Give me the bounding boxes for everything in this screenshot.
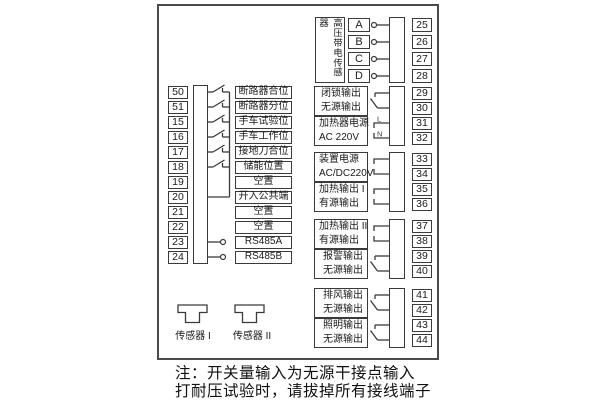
output-group-sublabel: 无源输出 bbox=[323, 303, 363, 317]
hv-sensor-label-box: 高压带电传感器 bbox=[315, 17, 345, 83]
output-group-device-power: 装置电源 AC/DC220V bbox=[314, 152, 368, 182]
output-group-label: 装置电源 bbox=[319, 153, 359, 167]
terminal-label: 空置 bbox=[235, 206, 292, 219]
terminal-label: 开入公共端 bbox=[235, 191, 292, 204]
terminal-number: 18 bbox=[168, 161, 188, 174]
wiring-diagram-page: LN 高压带电传感器 50断路器合位51断路器分位15手车试验位16手车工作位1… bbox=[0, 0, 600, 400]
output-group-heater-power: 加热器电源 AC 220V bbox=[314, 116, 368, 146]
terminal-number: 30 bbox=[412, 102, 432, 115]
output-group-sublabel: 有源输出 bbox=[319, 234, 359, 248]
terminal-number: 22 bbox=[168, 221, 188, 234]
output-group-sublabel: AC 220V bbox=[319, 131, 359, 145]
terminal-number: 29 bbox=[412, 87, 432, 100]
terminal-label: 断路器分位 bbox=[235, 101, 292, 114]
terminal-number: 40 bbox=[412, 265, 432, 278]
output-group-sublabel: 无源输出 bbox=[323, 333, 363, 347]
terminal-number: 28 bbox=[412, 69, 432, 83]
terminal-label: 断路器合位 bbox=[235, 86, 292, 99]
output-group-lighting: 照明输出 无源输出 bbox=[314, 318, 368, 348]
note-line-2: 打耐压试验时，请拔掉所有接线端子 bbox=[175, 379, 431, 400]
output-group-block-lock: 闭锁输出 无源输出 bbox=[314, 86, 368, 116]
input-screw-column bbox=[193, 85, 208, 264]
hv-phase-box: B bbox=[348, 35, 370, 49]
terminal-number: 33 bbox=[412, 153, 432, 166]
sensor-2-label: 传感器 II bbox=[228, 327, 276, 342]
terminal-number: 26 bbox=[412, 35, 432, 49]
terminal-number: 36 bbox=[412, 198, 432, 211]
terminal-number: 15 bbox=[168, 116, 188, 129]
terminal-number: 43 bbox=[412, 319, 432, 332]
output-group-label: 报警输出 bbox=[323, 250, 363, 264]
output-group-heat-2: 加热输出 II 有源输出 bbox=[314, 219, 368, 249]
terminal-label: 空置 bbox=[235, 221, 292, 234]
output-group-label: 加热输出 I bbox=[319, 183, 365, 197]
terminal-number: 35 bbox=[412, 183, 432, 196]
terminal-number: 50 bbox=[168, 86, 188, 99]
terminal-number: 24 bbox=[168, 251, 188, 264]
terminal-label: 接地刀合位 bbox=[235, 146, 292, 159]
terminal-number: 41 bbox=[412, 289, 432, 302]
hv-screw-column bbox=[389, 17, 405, 83]
output-group-sublabel: 无源输出 bbox=[323, 264, 363, 278]
terminal-number: 32 bbox=[412, 132, 432, 145]
terminal-label: RS485A bbox=[235, 236, 292, 249]
terminal-number: 21 bbox=[168, 206, 188, 219]
terminal-label: RS485B bbox=[235, 251, 292, 264]
terminal-number: 23 bbox=[168, 236, 188, 249]
output-group-label: 闭锁输出 bbox=[321, 87, 361, 101]
terminal-number: 51 bbox=[168, 101, 188, 114]
output-group-exhaust: 排风输出 无源输出 bbox=[314, 288, 368, 318]
terminal-number: 17 bbox=[168, 146, 188, 159]
terminal-number: 31 bbox=[412, 117, 432, 130]
hv-phase-box: C bbox=[348, 52, 370, 66]
output-group-sublabel: AC/DC220V bbox=[319, 167, 373, 181]
output-screw-column-3 bbox=[389, 219, 405, 279]
terminal-label: 空置 bbox=[235, 176, 292, 189]
terminal-number: 19 bbox=[168, 176, 188, 189]
output-group-sublabel: 无源输出 bbox=[321, 101, 361, 115]
terminal-number: 42 bbox=[412, 304, 432, 317]
output-screw-column-2 bbox=[389, 152, 405, 212]
output-group-heat-1: 加热输出 I 有源输出 bbox=[314, 182, 368, 212]
output-group-sublabel: 有源输出 bbox=[319, 197, 359, 211]
output-screw-column-4 bbox=[389, 288, 405, 348]
terminal-number: 20 bbox=[168, 191, 188, 204]
hv-phase-box: A bbox=[348, 18, 370, 32]
sensor-1-label: 传感器 I bbox=[171, 327, 215, 342]
terminal-number: 16 bbox=[168, 131, 188, 144]
terminal-number: 37 bbox=[412, 220, 432, 233]
terminal-label: 储能位置 bbox=[235, 161, 292, 174]
output-group-label: 加热器电源 bbox=[319, 117, 369, 131]
hv-phase-box: D bbox=[348, 69, 370, 83]
terminal-label: 手车试验位 bbox=[235, 116, 292, 129]
terminal-number: 39 bbox=[412, 250, 432, 263]
output-group-alarm: 报警输出 无源输出 bbox=[314, 249, 368, 279]
terminal-number: 27 bbox=[412, 52, 432, 66]
terminal-number: 34 bbox=[412, 168, 432, 181]
terminal-number: 25 bbox=[412, 18, 432, 32]
output-group-label: 排风输出 bbox=[323, 289, 363, 303]
terminal-number: 44 bbox=[412, 334, 432, 347]
output-group-label: 照明输出 bbox=[323, 319, 363, 333]
terminal-label: 手车工作位 bbox=[235, 131, 292, 144]
output-screw-column-1 bbox=[389, 86, 405, 146]
output-group-label: 加热输出 II bbox=[319, 220, 367, 234]
hv-sensor-label: 高压带电传感器 bbox=[316, 18, 344, 82]
terminal-number: 38 bbox=[412, 235, 432, 248]
